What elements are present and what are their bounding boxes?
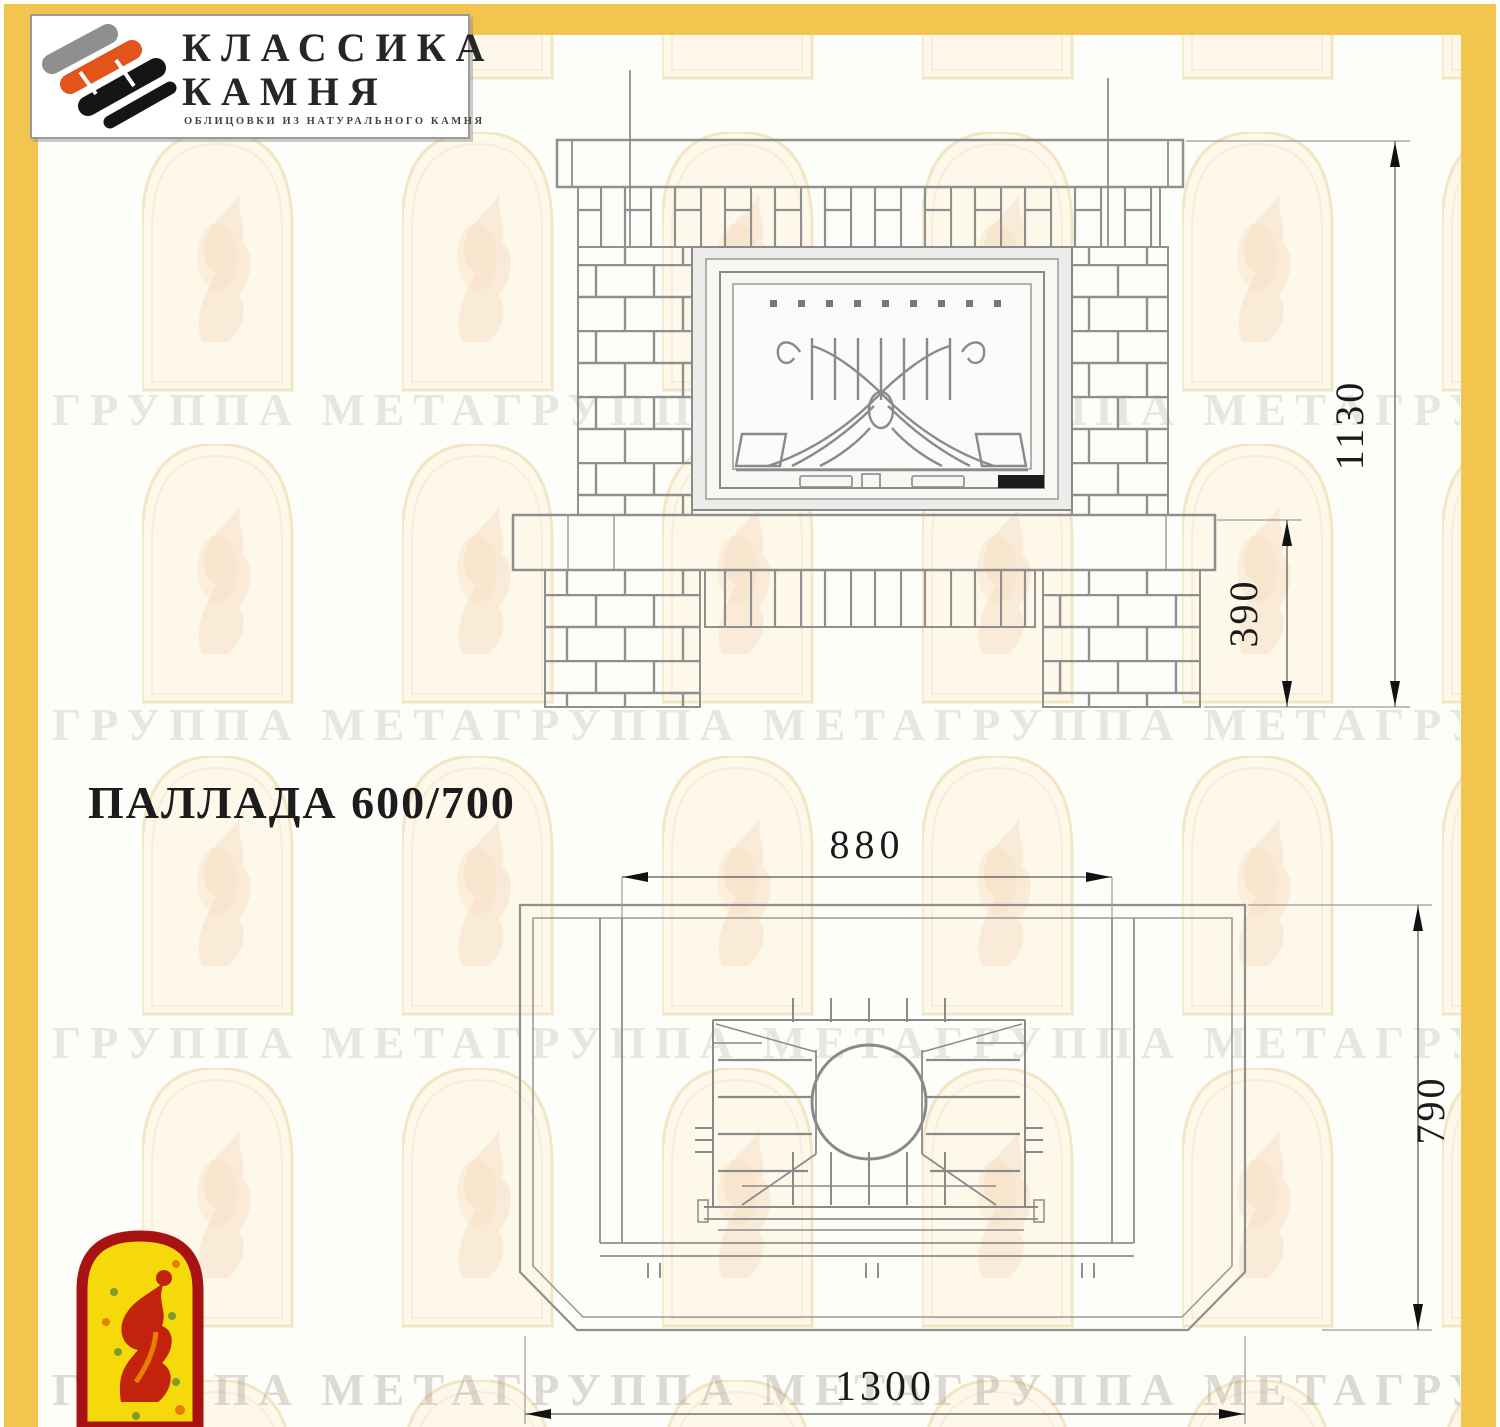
air-vent-holes (770, 300, 1001, 307)
plan-portal-columns (600, 918, 1134, 1256)
upper-soldier-course (578, 187, 1160, 247)
arrowhead-down (1282, 681, 1292, 706)
arrowhead-down (1413, 1304, 1423, 1329)
plan-view: 880 790 1300 (520, 822, 1453, 1424)
left-brick-column (578, 247, 692, 515)
dimension-total-height: 1130 (1186, 141, 1410, 707)
base-soldier-course (705, 570, 1035, 627)
arrowhead-up (1413, 906, 1423, 931)
meta-firebird-logo (76, 1230, 204, 1427)
left-base-pedestal (545, 570, 700, 707)
dimension-hearth-height: 390 (1217, 520, 1302, 707)
stone-stripes-logo-icon (38, 20, 178, 130)
page: ГРУППА МЕТАГРУППА МЕТАГРУППА МЕТАГРУППА … (0, 0, 1500, 1427)
flue-outlet-circle (812, 1045, 926, 1159)
plan-anchor-marks (648, 1263, 1094, 1278)
arrowhead-left (526, 1409, 551, 1419)
dim-label-880: 880 (830, 822, 905, 867)
company-name-line2: КАМНЯ (182, 68, 388, 115)
company-tagline: ОБЛИЦОВКИ ИЗ НАТУРАЛЬНОГО КАМНЯ (184, 116, 485, 127)
right-brick-column (1072, 247, 1168, 515)
dim-label-390: 390 (1221, 579, 1266, 648)
dim-label-1300: 1300 (835, 1364, 935, 1410)
front-elevation-view: 1130 390 (513, 70, 1410, 707)
dim-label-790: 790 (1408, 1076, 1453, 1145)
company-name-line1: КЛАССИКА (182, 24, 494, 71)
mantel-shelf (557, 140, 1183, 187)
arrowhead-right (1086, 872, 1111, 882)
plan-side-trim (695, 1128, 1043, 1152)
right-base-pedestal (1043, 570, 1200, 707)
company-logo-box: КЛАССИКА КАМНЯ ОБЛИЦОВКИ ИЗ НАТУРАЛЬНОГО… (30, 14, 470, 139)
plan-bottom-ticks (793, 1152, 945, 1205)
dim-label-1130: 1130 (1327, 380, 1372, 471)
dimension-total-width: 1300 (525, 1336, 1245, 1424)
plan-inner-outline (533, 918, 1232, 1317)
firebox-handle (998, 475, 1044, 488)
arrowhead-up (1390, 142, 1400, 167)
firebox-insert (692, 247, 1072, 510)
hearth-shelf (513, 515, 1215, 570)
arrowhead-left (623, 872, 648, 882)
dimension-portal-width: 880 (622, 822, 1112, 918)
plan-outer-outline (520, 905, 1245, 1330)
frame-border-right (1461, 4, 1496, 1427)
frame-border-left (4, 4, 38, 1427)
arrowhead-right (1219, 1409, 1244, 1419)
fireplace-technical-drawing: 1130 390 (0, 0, 1500, 1427)
plan-top-ticks (793, 998, 945, 1022)
dimension-depth: 790 (1248, 905, 1453, 1330)
model-title: ПАЛЛАДА 600/700 (88, 776, 516, 829)
arrowhead-up (1282, 521, 1292, 546)
arrowhead-down (1390, 681, 1400, 706)
plan-firebox-insert (695, 998, 1044, 1230)
